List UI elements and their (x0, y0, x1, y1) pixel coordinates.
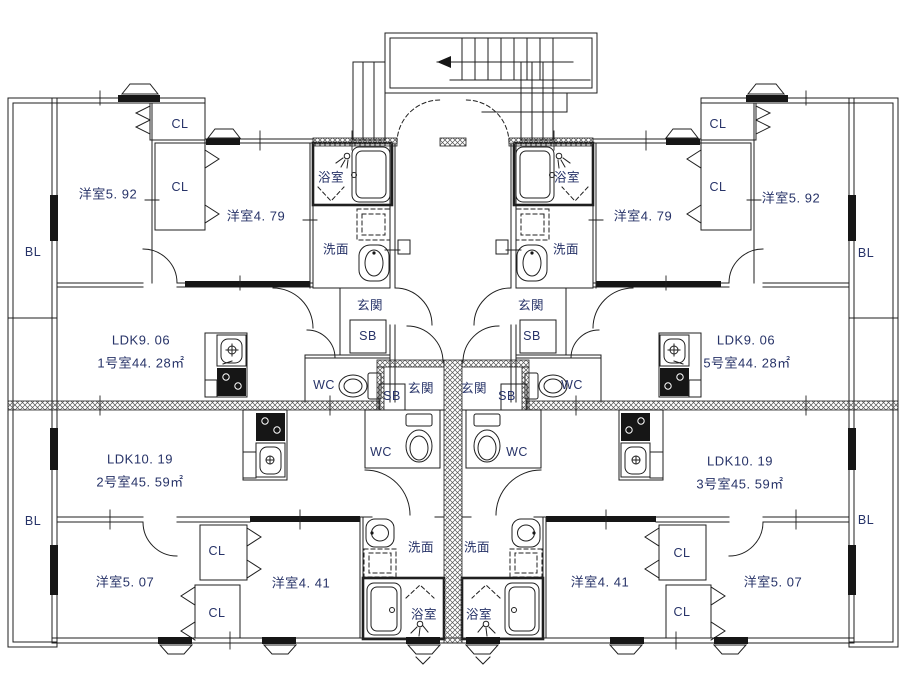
door-arc (307, 330, 335, 358)
door-arc (397, 100, 440, 143)
entrance-upper (273, 288, 390, 402)
floor-plan-canvas (0, 0, 906, 674)
bathroom-lower (363, 578, 444, 639)
floor-plan-page: BLBLBLBL洋室5. 92CLCL洋室4. 79浴室洗面玄関SBWCLDK9… (0, 0, 906, 674)
toilet-lower (365, 410, 440, 515)
door-arc (143, 249, 177, 283)
stairs-direction-arrow-icon (437, 56, 451, 68)
toilet-upper (339, 373, 381, 399)
stairwell (385, 33, 597, 643)
washroom-upper (357, 209, 390, 281)
meter-box-icon (398, 240, 410, 254)
sink-icon (366, 519, 394, 547)
closets-lower (181, 525, 261, 640)
door-arc (395, 288, 432, 325)
vent-icon (122, 84, 158, 94)
vent-icon (264, 645, 296, 654)
door-arc (407, 326, 443, 362)
vent-icon (408, 645, 440, 654)
shower-icon (417, 621, 423, 627)
stove-icon (217, 368, 246, 396)
bathroom-upper (313, 143, 392, 205)
kitchen-lower (243, 410, 287, 480)
vent-icon (208, 129, 240, 138)
washroom-lower (360, 517, 444, 578)
east-wing-mirror (453, 62, 898, 664)
balcony-west (8, 98, 58, 647)
shower-icon (344, 153, 350, 159)
entrance-lower (379, 326, 444, 410)
toilet-icon (339, 375, 367, 397)
vent-icon (160, 645, 192, 654)
closets-upper (136, 103, 219, 283)
door-arc (143, 522, 177, 556)
stair-treads (462, 38, 553, 80)
kitchen-upper (205, 333, 247, 397)
door-arc (273, 288, 313, 328)
pipe-shaft (353, 62, 385, 140)
stove-icon (256, 413, 285, 441)
west-wing (8, 62, 453, 664)
bathtub-icon (367, 583, 401, 635)
door-arc (365, 470, 410, 515)
shoebox-icon (350, 320, 386, 353)
bathtub-icon (352, 147, 390, 202)
